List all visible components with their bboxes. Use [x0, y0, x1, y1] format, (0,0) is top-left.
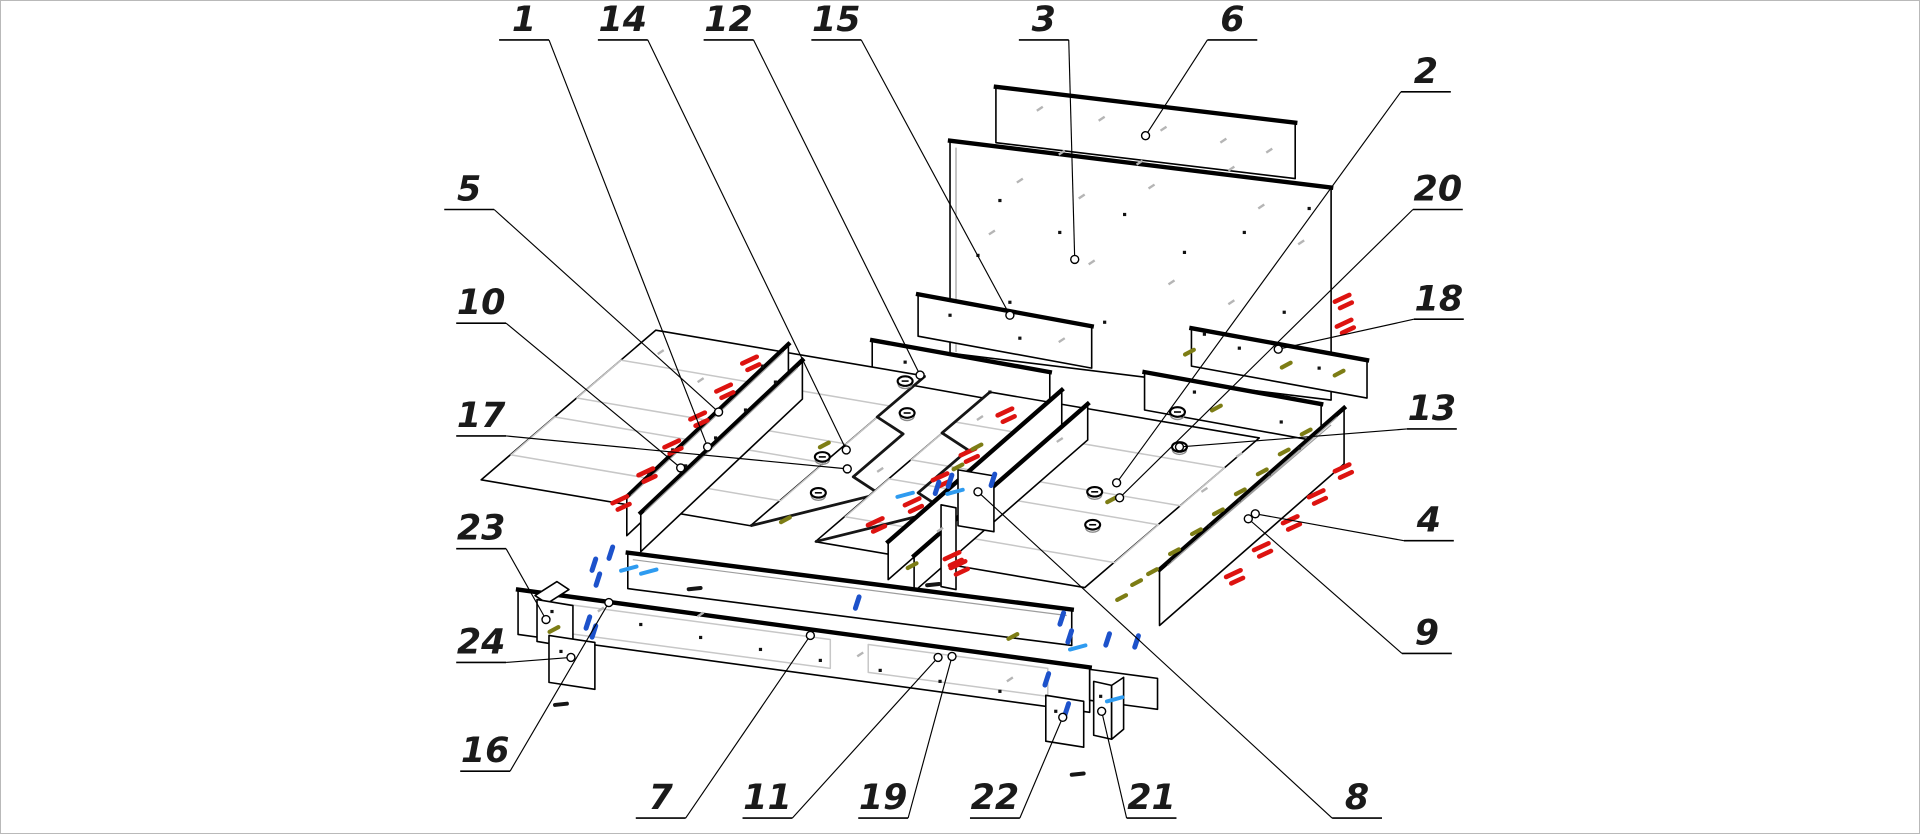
part-number-22: 22 — [971, 778, 1020, 818]
part-number-1: 1 — [512, 1, 536, 40]
leader-endpoint-2 — [1113, 479, 1121, 487]
part-number-12: 12 — [704, 1, 753, 40]
cam-lock-fitting — [1170, 407, 1185, 419]
exploded-view-drawing: 114121536220181349851017232416711192221 — [1, 1, 1919, 833]
drill-hole — [1268, 472, 1271, 475]
leader-endpoint-20 — [1116, 494, 1124, 502]
part-number-19: 19 — [859, 778, 908, 818]
drill-hole — [639, 623, 642, 626]
drill-hole — [1243, 231, 1246, 234]
leader-endpoint-12 — [916, 371, 924, 379]
black-screw-icon — [555, 704, 567, 705]
part-number-7: 7 — [649, 778, 674, 818]
drill-hole — [1123, 213, 1126, 216]
cam-lock-fitting — [898, 376, 913, 388]
leader-endpoint-24 — [567, 653, 575, 661]
leader-endpoint-19 — [948, 652, 956, 660]
drill-hole — [774, 380, 777, 383]
leader-endpoint-7 — [806, 631, 814, 639]
blue-screw-icon — [1106, 634, 1110, 645]
part-number-3: 3 — [1032, 1, 1056, 40]
part-number-8: 8 — [1345, 778, 1369, 818]
blue-screw-icon — [1060, 613, 1064, 624]
drill-hole — [1183, 251, 1186, 254]
lightblue-screw-icon — [1070, 645, 1085, 649]
leader-line-4 — [1255, 514, 1404, 541]
blue-screw-icon — [596, 574, 600, 585]
blue-screw-icon — [935, 482, 939, 493]
wood-speck — [877, 468, 883, 472]
cam-lock-fitting — [1087, 487, 1102, 499]
part-center-leg-8 — [941, 505, 956, 590]
leader-endpoint-23 — [542, 616, 550, 624]
drill-hole — [819, 659, 822, 662]
drill-hole — [1238, 347, 1241, 350]
drill-hole — [1298, 446, 1301, 449]
drill-hole — [998, 690, 1001, 693]
part-number-15: 15 — [812, 1, 861, 40]
part-number-10: 10 — [457, 283, 506, 323]
part-number-14: 14 — [599, 1, 648, 40]
drill-hole — [879, 669, 882, 672]
drill-hole — [1054, 710, 1057, 713]
drill-hole — [1103, 321, 1106, 324]
leader-line-8 — [978, 492, 1332, 818]
drill-hole — [988, 390, 991, 393]
drill-hole — [1099, 695, 1102, 698]
drill-hole — [744, 408, 747, 411]
black-screw-icon — [689, 588, 701, 589]
drill-hole — [1283, 311, 1286, 314]
leader-endpoint-11 — [934, 653, 942, 661]
leader-endpoint-18 — [1274, 345, 1282, 353]
blue-screw-icon — [855, 597, 859, 608]
part-number-6: 6 — [1220, 1, 1244, 40]
black-screw-icon — [1072, 774, 1084, 775]
drill-hole — [1058, 231, 1061, 234]
drill-hole — [550, 610, 553, 613]
cam-lock-fitting — [1085, 520, 1100, 532]
drill-hole — [1193, 390, 1196, 393]
leader-endpoint-17 — [843, 465, 851, 473]
drill-hole — [998, 199, 1001, 202]
wood-dowel-icon — [1148, 569, 1157, 574]
leader-line-12 — [753, 40, 920, 375]
red-confirmat-screw-icon — [1226, 570, 1244, 584]
blue-screw-icon — [948, 475, 952, 486]
leader-endpoint-3 — [1071, 255, 1079, 263]
drill-hole — [559, 650, 562, 653]
drill-hole — [938, 680, 941, 683]
leader-line-9 — [1248, 519, 1402, 654]
part-number-13: 13 — [1408, 389, 1457, 429]
leader-endpoint-16 — [605, 599, 613, 607]
drill-hole — [904, 361, 907, 364]
red-confirmat-screw-icon — [1283, 516, 1301, 530]
drill-hole — [1018, 337, 1021, 340]
blue-screw-icon — [586, 617, 590, 628]
part-number-17: 17 — [457, 396, 506, 436]
blue-screw-icon — [1045, 674, 1049, 685]
drill-hole — [948, 314, 951, 317]
wood-dowel-icon — [1258, 470, 1267, 475]
drill-hole — [1318, 367, 1321, 370]
blue-screw-icon — [1065, 704, 1069, 715]
part-number-23: 23 — [457, 509, 506, 549]
leader-endpoint-14 — [842, 446, 850, 454]
part-number-4: 4 — [1416, 501, 1441, 541]
part-bracket-21-flap — [1112, 677, 1124, 739]
part-number-21: 21 — [1127, 778, 1176, 818]
part-number-9: 9 — [1415, 613, 1439, 653]
leader-endpoint-10 — [677, 464, 685, 472]
wood-dowel-icon — [1132, 580, 1141, 585]
leader-endpoint-9 — [1244, 515, 1252, 523]
blue-screw-icon — [991, 474, 995, 485]
drill-hole — [1308, 207, 1311, 210]
drill-hole — [714, 436, 717, 439]
part-number-16: 16 — [461, 731, 510, 771]
blue-screw-icon — [609, 547, 613, 558]
cam-lock-fitting — [900, 408, 915, 420]
wood-dowel-icon — [1117, 595, 1126, 600]
red-confirmat-screw-icon — [1337, 320, 1355, 334]
leader-endpoint-6 — [1142, 132, 1150, 140]
part-number-11: 11 — [743, 778, 792, 818]
cam-lock-fitting — [815, 452, 830, 464]
leader-endpoint-4 — [1251, 510, 1259, 518]
leader-endpoint-8 — [974, 488, 982, 496]
part-number-18: 18 — [1415, 279, 1464, 319]
leader-endpoint-13 — [1175, 443, 1183, 451]
part-bracket-24 — [549, 635, 595, 689]
leader-endpoint-15 — [1006, 311, 1014, 319]
blue-screw-icon — [1068, 631, 1072, 642]
leader-endpoint-1 — [704, 443, 712, 451]
drill-hole — [1008, 301, 1011, 304]
drill-hole — [1208, 524, 1211, 527]
wood-speck — [1201, 488, 1207, 492]
wood-dowel-icon — [1280, 450, 1289, 455]
leader-line-22 — [1020, 717, 1063, 818]
blue-screw-icon — [592, 559, 596, 570]
red-confirmat-screw-icon — [1335, 295, 1353, 309]
drill-hole — [699, 636, 702, 639]
leader-endpoint-21 — [1098, 707, 1106, 715]
part-label-12: 12 — [704, 1, 924, 379]
cam-lock-fitting — [811, 488, 826, 500]
drill-hole — [1203, 333, 1206, 336]
red-confirmat-screw-icon — [1254, 543, 1272, 557]
leader-endpoint-5 — [715, 408, 723, 416]
part-number-24: 24 — [457, 622, 506, 662]
black-screw-icon — [927, 584, 939, 585]
part-number-2: 2 — [1414, 52, 1438, 92]
drill-hole — [1280, 420, 1283, 423]
part-number-5: 5 — [457, 170, 481, 210]
leader-endpoint-22 — [1059, 713, 1067, 721]
assembly-diagram-page: 114121536220181349851017232416711192221 — [0, 0, 1920, 834]
drill-hole — [1238, 498, 1241, 501]
drill-hole — [759, 648, 762, 651]
part-number-20: 20 — [1414, 170, 1463, 210]
